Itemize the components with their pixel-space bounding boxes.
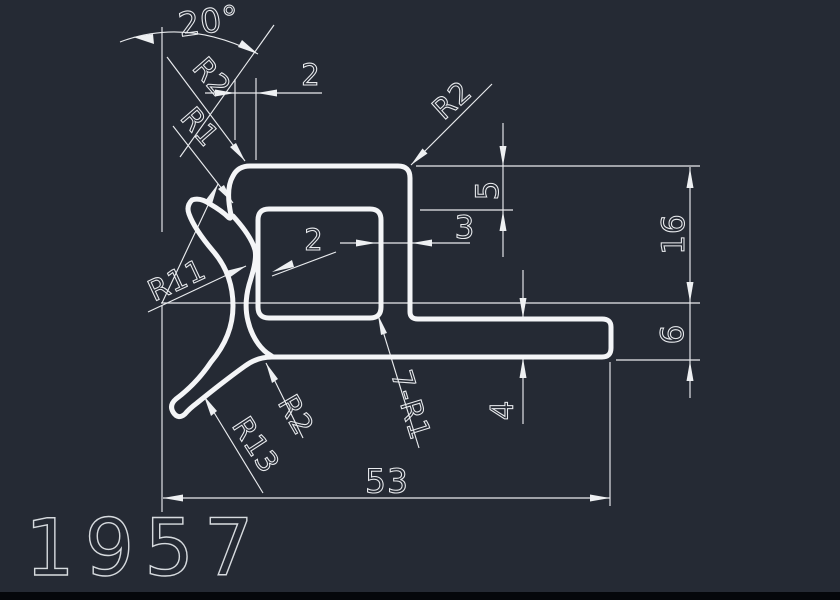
label-height-16: 16: [656, 213, 692, 254]
arrowhead: [500, 146, 507, 166]
label-angle-20: 20°: [176, 0, 242, 45]
cad-viewport: 20° 2 R2 R1 R2 5 3 16 R11 2 6 R2 7-R1 4 …: [0, 0, 840, 600]
label-r2-corner: R2: [426, 74, 479, 126]
arrowhead: [204, 396, 217, 416]
label-7r1: 7-R1: [384, 366, 437, 444]
arrowhead: [238, 40, 258, 54]
arrowhead: [520, 358, 527, 378]
label-r11: R11: [143, 252, 212, 308]
label-r2-lower: R2: [271, 389, 321, 441]
arrowhead: [687, 361, 694, 381]
arrowhead: [356, 240, 376, 247]
label-r13: R13: [225, 411, 286, 480]
cad-drawing-canvas: 20° 2 R2 R1 R2 5 3 16 R11 2 6 R2 7-R1 4 …: [0, 0, 840, 600]
profile-inner-wall: [233, 216, 273, 357]
label-wall-2: 2: [304, 223, 323, 257]
arrowhead: [520, 298, 527, 318]
label-leg-4: 4: [485, 400, 521, 421]
arrowhead: [266, 363, 278, 383]
label-width-53: 53: [365, 462, 409, 501]
label-height-6: 6: [655, 324, 691, 345]
label-depth-5: 5: [470, 180, 506, 201]
arrowhead: [412, 240, 432, 247]
arrowhead: [133, 34, 154, 44]
part-number: 1957: [25, 504, 264, 594]
label-wall-3: 3: [455, 210, 476, 246]
label-r1-upper: R1: [174, 101, 226, 154]
arrowhead: [687, 282, 694, 302]
arrowhead: [257, 90, 277, 97]
arrowhead: [230, 143, 245, 161]
arrowhead: [163, 495, 183, 502]
arrowhead: [272, 260, 294, 272]
arrowhead: [500, 211, 507, 231]
arrowhead: [687, 168, 694, 188]
bottom-edge-bar: [0, 592, 840, 600]
label-gap-2-top: 2: [301, 58, 320, 92]
arrowhead: [590, 495, 610, 502]
arrowhead: [378, 315, 387, 335]
label-r2-upper: R2: [186, 51, 238, 104]
